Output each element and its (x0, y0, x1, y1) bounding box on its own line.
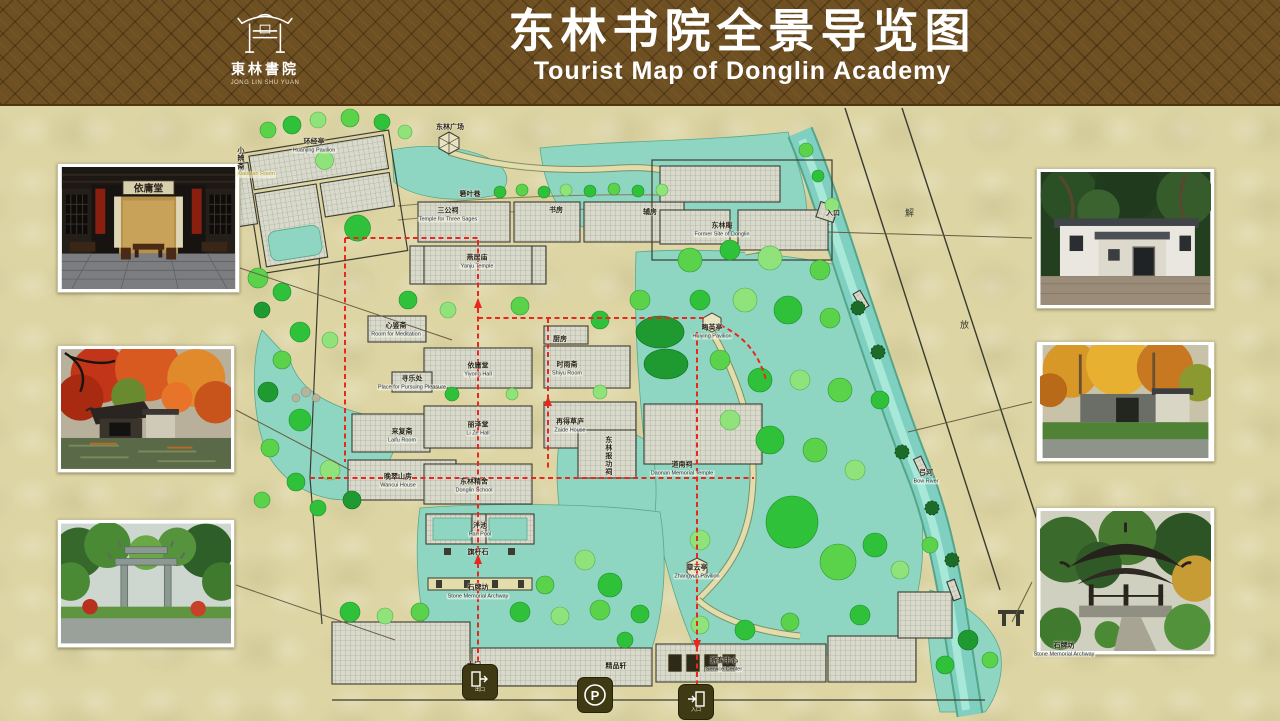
exit-icon-label: 出口 (475, 688, 485, 693)
photo-autumn-garden (57, 345, 235, 473)
title-banner: 東林書院 JONG LIN SHU YUAN 东林书院全景导览图 Tourist… (0, 0, 1280, 106)
parking-icon: P (577, 677, 613, 713)
photo-autumn-gate (1036, 341, 1215, 462)
exit-icon: 出口 (462, 664, 498, 700)
svg-text:P: P (591, 688, 600, 703)
photo-yiyong-hall-interior: 依庸堂 (57, 163, 240, 293)
academy-logo: 東林書院 JONG LIN SHU YUAN (210, 4, 320, 86)
entrance-icon-label: 入口 (691, 708, 701, 713)
photo-pavilion (1036, 507, 1215, 655)
svg-text:依庸堂: 依庸堂 (134, 182, 164, 195)
photo-white-house (1036, 168, 1215, 309)
svg-text:放: 放 (960, 319, 969, 330)
logo-name-en: JONG LIN SHU YUAN (210, 80, 320, 86)
svg-text:解: 解 (905, 207, 914, 218)
page-subtitle: Tourist Map of Donglin Academy (375, 57, 1110, 86)
archway-logo-icon (235, 4, 295, 54)
donglin-square-kiosk (439, 132, 459, 154)
photo-archway-park (57, 519, 235, 648)
nw-compound (227, 130, 408, 276)
page-title: 东林书院全景导览图 (375, 7, 1110, 55)
entrance-icon: 入口 (678, 684, 714, 720)
logo-name-zh: 東林書院 (210, 59, 320, 79)
